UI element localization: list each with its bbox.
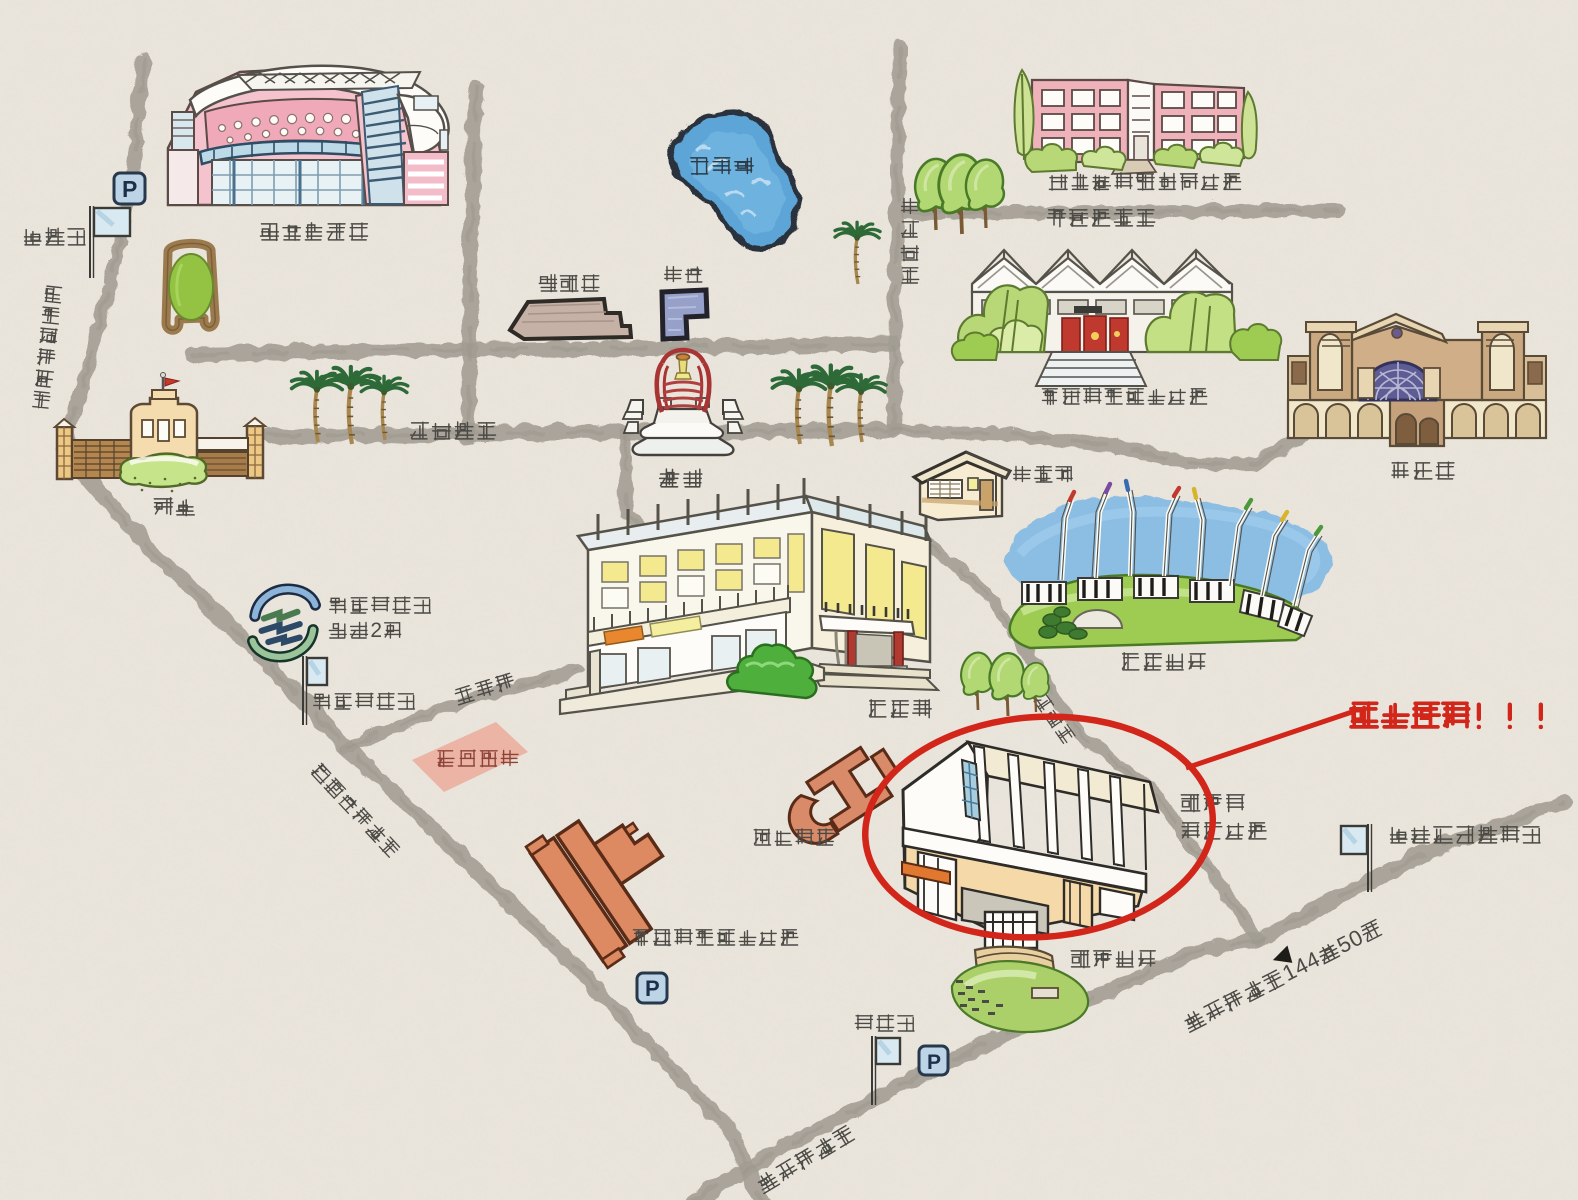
- svg-text:2: 2: [370, 619, 382, 642]
- svg-text:P: P: [122, 176, 137, 202]
- svg-text:P: P: [645, 976, 660, 1001]
- svg-text:P: P: [927, 1051, 941, 1074]
